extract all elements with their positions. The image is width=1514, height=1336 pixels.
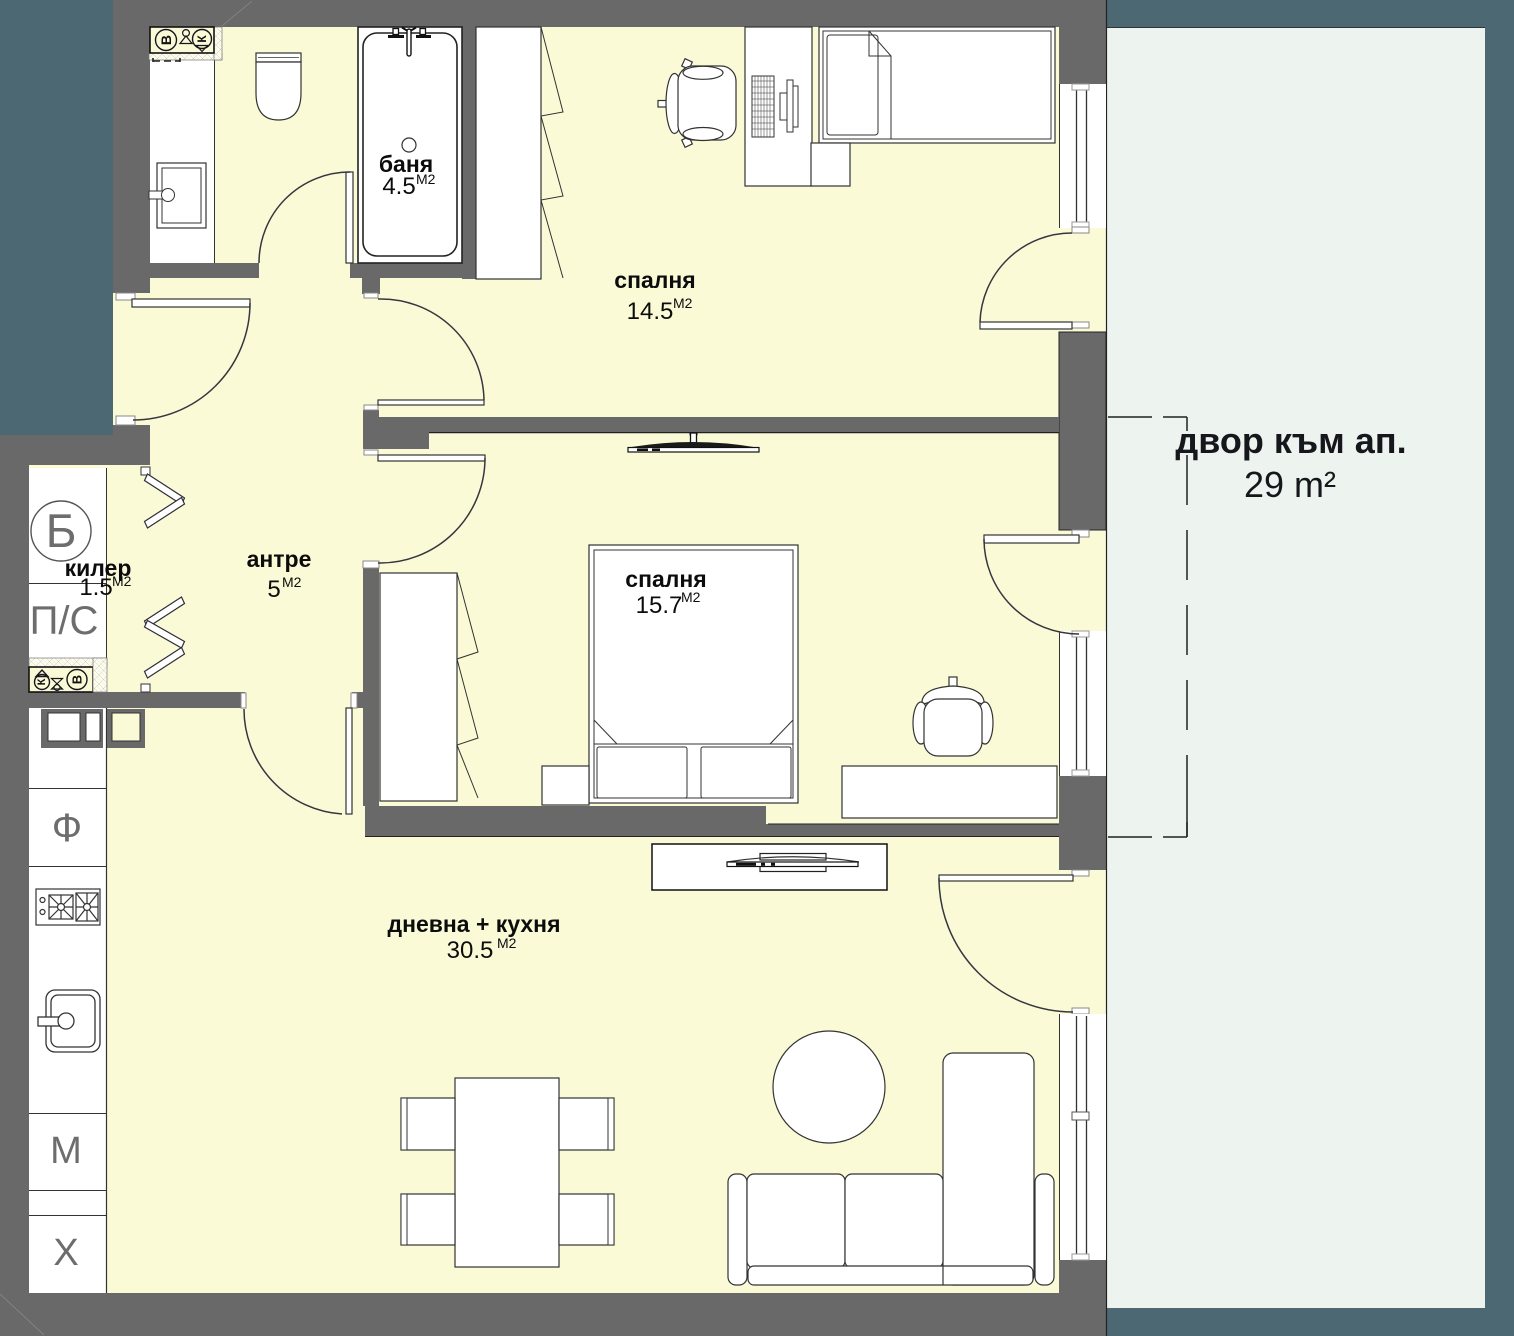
svg-text:Ф: Ф	[52, 806, 82, 850]
svg-text:М2: М2	[112, 573, 132, 589]
svg-text:М: М	[50, 1130, 82, 1172]
svg-text:М2: М2	[282, 574, 302, 590]
svg-text:П/С: П/С	[30, 599, 99, 643]
svg-text:М2: М2	[681, 589, 701, 605]
svg-text:30.5: 30.5	[447, 937, 494, 964]
svg-text:29 m²: 29 m²	[1244, 464, 1336, 505]
svg-text:1.5: 1.5	[79, 574, 112, 601]
svg-text:Х: Х	[53, 1232, 78, 1274]
svg-text:спалня: спалня	[614, 267, 695, 293]
svg-text:К: К	[36, 678, 48, 685]
svg-text:5: 5	[267, 576, 280, 603]
svg-text:М2: М2	[416, 171, 436, 187]
svg-text:15.7: 15.7	[636, 592, 683, 619]
svg-text:14.5: 14.5	[627, 298, 674, 325]
svg-text:В: В	[158, 35, 174, 45]
svg-text:М2: М2	[497, 935, 517, 951]
svg-text:В: В	[70, 675, 85, 684]
svg-text:антре: антре	[247, 546, 312, 572]
svg-text:Б: Б	[46, 504, 77, 557]
svg-text:дневна + кухня: дневна + кухня	[387, 911, 560, 937]
svg-text:М2: М2	[673, 295, 693, 311]
svg-text:К: К	[195, 35, 209, 43]
svg-text:двор към ап.: двор към ап.	[1175, 420, 1406, 461]
svg-text:4.5: 4.5	[382, 173, 415, 200]
